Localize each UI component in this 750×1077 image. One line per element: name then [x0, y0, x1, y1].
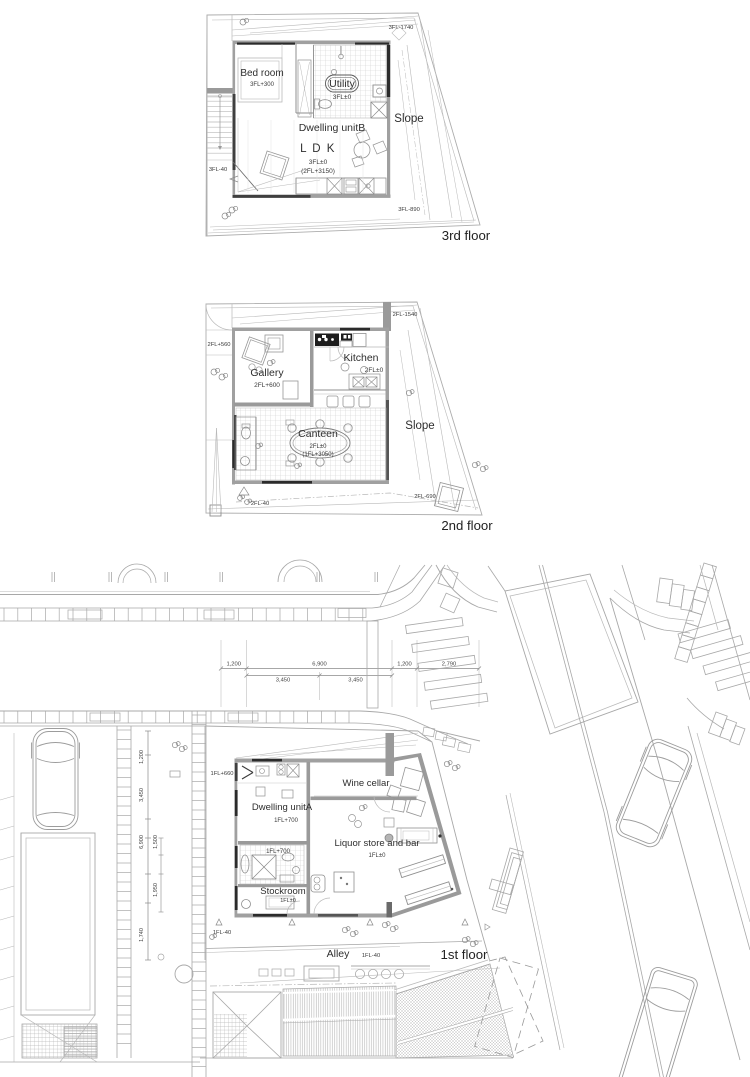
svg-text:1st floor: 1st floor: [441, 947, 489, 962]
svg-text:Stockroom: Stockroom: [260, 886, 305, 897]
svg-text:2FL+600: 2FL+600: [254, 382, 280, 389]
svg-text:Dwelling unitA: Dwelling unitA: [252, 802, 313, 813]
svg-text:2FL-690: 2FL-690: [414, 494, 436, 500]
svg-text:Gallery: Gallery: [250, 367, 284, 379]
svg-text:6,900: 6,900: [312, 662, 327, 668]
svg-text:3FL-40: 3FL-40: [209, 167, 227, 173]
svg-text:3FL-890: 3FL-890: [398, 207, 420, 213]
svg-text:6,900: 6,900: [139, 835, 145, 849]
svg-text:2FL-1540: 2FL-1540: [393, 312, 418, 318]
svg-text:1FL+700: 1FL+700: [266, 849, 291, 855]
svg-text:(1FL+3050): (1FL+3050): [302, 452, 333, 458]
svg-text:Canteen: Canteen: [298, 428, 338, 440]
svg-text:L D K: L D K: [300, 143, 336, 155]
svg-text:(2FL+3150): (2FL+3150): [301, 168, 335, 175]
svg-text:Liquor store and bar: Liquor store and bar: [334, 838, 419, 849]
svg-text:1,740: 1,740: [139, 928, 145, 942]
svg-text:3,450: 3,450: [348, 678, 363, 684]
svg-text:3FL+300: 3FL+300: [250, 82, 275, 88]
svg-text:Bed room: Bed room: [240, 68, 283, 79]
svg-text:3FL±0: 3FL±0: [309, 159, 328, 166]
svg-text:1FL-40: 1FL-40: [213, 930, 231, 936]
svg-text:1FL±0: 1FL±0: [369, 853, 387, 859]
svg-text:Alley: Alley: [327, 948, 351, 960]
svg-text:Slope: Slope: [405, 420, 434, 432]
svg-text:Dwelling unitB: Dwelling unitB: [299, 122, 366, 134]
svg-text:1FL+660: 1FL+660: [210, 771, 233, 777]
svg-text:1,950: 1,950: [153, 883, 159, 897]
svg-text:1FL-40: 1FL-40: [362, 953, 380, 959]
svg-text:1FL+700: 1FL+700: [274, 818, 299, 824]
svg-text:1,500: 1,500: [153, 835, 159, 849]
svg-text:Utility: Utility: [329, 78, 355, 90]
svg-text:Kitchen: Kitchen: [343, 352, 378, 364]
svg-text:3rd floor: 3rd floor: [442, 228, 491, 243]
svg-text:2FL+560: 2FL+560: [207, 342, 230, 348]
svg-text:1,200: 1,200: [139, 750, 145, 764]
svg-text:1FL±0: 1FL±0: [280, 898, 296, 904]
svg-text:1,200: 1,200: [226, 662, 241, 668]
svg-text:2nd floor: 2nd floor: [441, 518, 493, 533]
svg-text:1,200: 1,200: [397, 662, 412, 668]
svg-text:2FL-40: 2FL-40: [251, 501, 269, 507]
svg-text:3,450: 3,450: [276, 678, 291, 684]
svg-text:Slope: Slope: [394, 113, 423, 125]
svg-text:2FL±0: 2FL±0: [310, 444, 328, 450]
svg-text:3,450: 3,450: [139, 788, 145, 802]
svg-text:Wine cellar: Wine cellar: [343, 778, 390, 789]
svg-text:3FL±0: 3FL±0: [333, 94, 352, 101]
